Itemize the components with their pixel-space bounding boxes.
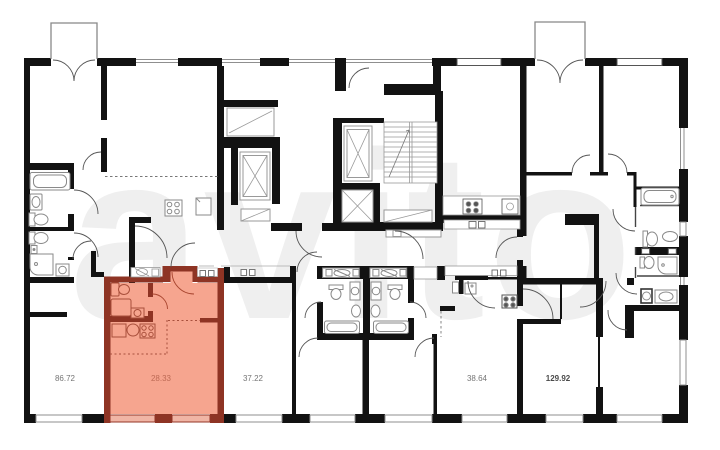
svg-text:28.33: 28.33	[151, 374, 172, 383]
svg-text:129.92: 129.92	[546, 374, 571, 383]
svg-text:86.72: 86.72	[55, 374, 76, 383]
svg-text:37.22: 37.22	[243, 374, 264, 383]
svg-text:38.64: 38.64	[467, 374, 488, 383]
